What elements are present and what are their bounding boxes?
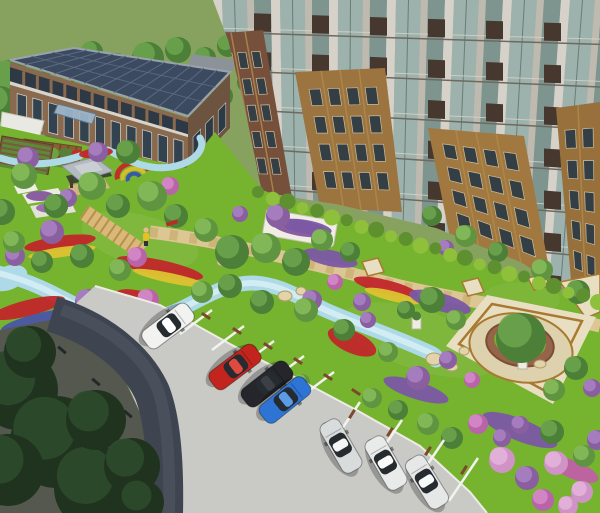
tower-spandrel bbox=[544, 149, 561, 168]
boulder bbox=[278, 291, 292, 301]
hedge-bush bbox=[576, 288, 590, 302]
tree-highlight bbox=[122, 480, 152, 510]
tree-highlight bbox=[389, 400, 403, 414]
tower-brick-window bbox=[587, 255, 595, 277]
tower-brick-window bbox=[569, 190, 579, 209]
tower-brick-window bbox=[584, 160, 594, 179]
bush-highlight bbox=[490, 447, 508, 465]
tower-brick-window bbox=[377, 173, 390, 190]
bush-highlight bbox=[354, 293, 366, 305]
office-window bbox=[142, 130, 151, 160]
hedge-bush bbox=[266, 192, 280, 206]
bush-highlight bbox=[494, 429, 506, 441]
bush-highlight bbox=[89, 142, 103, 156]
tower-brick-window bbox=[565, 129, 576, 148]
tree-highlight bbox=[71, 244, 87, 260]
hedge-bush bbox=[562, 287, 574, 299]
bush-highlight bbox=[559, 496, 573, 510]
tower-brick-window bbox=[337, 144, 350, 161]
bush-highlight bbox=[128, 247, 142, 261]
tower-spandrel bbox=[486, 21, 503, 40]
tower-brick-window bbox=[583, 128, 594, 148]
hedge-bush bbox=[532, 276, 546, 290]
tower-brick-window bbox=[355, 144, 368, 161]
hedge-bush bbox=[368, 222, 384, 238]
bush-highlight bbox=[328, 274, 339, 285]
tree-highlight bbox=[544, 379, 559, 394]
hedge-bush bbox=[280, 193, 296, 209]
tree-highlight bbox=[442, 427, 457, 442]
tree-highlight bbox=[532, 259, 547, 274]
hedge-bush bbox=[341, 214, 353, 226]
tree-highlight bbox=[57, 447, 114, 504]
tree-highlight bbox=[107, 194, 123, 210]
tree-highlight bbox=[574, 445, 589, 460]
tree-highlight bbox=[165, 204, 181, 220]
tower-spandrel bbox=[544, 232, 561, 252]
tree-highlight bbox=[110, 259, 125, 274]
tower-brick-window bbox=[332, 116, 346, 133]
bush-highlight bbox=[267, 204, 283, 220]
tower-brick-window bbox=[369, 116, 382, 133]
tree-highlight bbox=[565, 356, 581, 372]
tower-spandrel bbox=[544, 190, 561, 209]
hedge-bush bbox=[324, 209, 340, 225]
bush-highlight bbox=[440, 351, 452, 363]
tower-spandrel bbox=[544, 23, 561, 42]
tower-spandrel bbox=[312, 54, 329, 73]
tree-highlight bbox=[379, 342, 393, 356]
tree-highlight bbox=[498, 314, 532, 348]
tree-highlight bbox=[252, 233, 272, 253]
tower-brick-window bbox=[359, 172, 372, 189]
hedge-bush bbox=[385, 230, 397, 242]
tree-highlight bbox=[68, 391, 109, 432]
bush-highlight bbox=[533, 489, 548, 504]
tower-brick-window bbox=[328, 88, 342, 105]
tower-spandrel bbox=[254, 13, 271, 32]
tree-highlight bbox=[166, 37, 184, 55]
bush-highlight bbox=[361, 312, 372, 323]
tower-brick-window bbox=[567, 160, 578, 179]
hedge-bush bbox=[429, 242, 441, 254]
tree-highlight bbox=[295, 298, 311, 314]
tree-highlight bbox=[216, 235, 239, 258]
tree-highlight bbox=[489, 242, 503, 256]
pavilion-post bbox=[70, 178, 73, 188]
tree-highlight bbox=[398, 301, 410, 313]
tree-highlight bbox=[447, 310, 461, 324]
tree-highlight bbox=[106, 439, 144, 477]
tower-spandrel bbox=[428, 59, 445, 78]
person-body bbox=[143, 233, 149, 241]
hedge-bush bbox=[488, 260, 502, 274]
tree-highlight bbox=[418, 413, 433, 428]
bush-highlight bbox=[465, 372, 476, 383]
office-window bbox=[158, 134, 167, 163]
tree-highlight bbox=[334, 319, 349, 334]
tree-highlight bbox=[423, 206, 437, 220]
bush-highlight bbox=[233, 206, 244, 217]
tree-highlight bbox=[138, 181, 158, 201]
tree-highlight bbox=[192, 281, 207, 296]
tower-brick-window bbox=[373, 144, 386, 161]
scene-svg bbox=[0, 0, 600, 513]
tree-highlight bbox=[32, 251, 47, 266]
hedge-bush bbox=[354, 220, 368, 234]
tower-brick-window bbox=[309, 89, 323, 106]
hedge-bush bbox=[457, 250, 473, 266]
hedge-bush bbox=[413, 238, 429, 254]
bush-highlight bbox=[407, 366, 423, 382]
tree-highlight bbox=[195, 218, 211, 234]
tower-brick-window bbox=[346, 88, 360, 105]
tree-highlight bbox=[341, 242, 355, 256]
tower-spandrel bbox=[428, 19, 445, 38]
bush-highlight bbox=[469, 414, 483, 428]
hedge-bush bbox=[443, 248, 457, 262]
hedge-bush bbox=[310, 204, 324, 218]
tree-highlight bbox=[312, 229, 327, 244]
tower-spandrel bbox=[544, 65, 561, 84]
person-head bbox=[143, 227, 148, 232]
tower-spandrel bbox=[370, 17, 387, 36]
tree-highlight bbox=[4, 231, 19, 246]
boulder bbox=[459, 347, 469, 355]
bush-highlight bbox=[516, 466, 532, 482]
tower-spandrel bbox=[312, 15, 329, 34]
hedge-bush bbox=[399, 232, 413, 246]
tree-highlight bbox=[12, 163, 30, 181]
tree-highlight bbox=[45, 194, 61, 210]
tree-highlight bbox=[363, 388, 377, 402]
tower-brick-window bbox=[573, 250, 582, 271]
tree-highlight bbox=[456, 225, 471, 240]
tower-spandrel bbox=[486, 62, 503, 81]
bush-highlight bbox=[584, 379, 596, 391]
bush-highlight bbox=[41, 220, 57, 236]
tower-brick-window bbox=[585, 192, 595, 212]
bush-highlight bbox=[18, 147, 33, 162]
tower-spandrel bbox=[486, 103, 503, 122]
tree-highlight bbox=[420, 287, 438, 305]
bush-highlight bbox=[545, 451, 561, 467]
tower-brick-window bbox=[586, 223, 595, 244]
bush-highlight bbox=[572, 481, 587, 496]
hedge-bush bbox=[518, 271, 530, 283]
tree-highlight bbox=[219, 274, 235, 290]
tower-brick-window bbox=[365, 87, 378, 104]
tower-brick-window bbox=[571, 220, 581, 240]
tree-highlight bbox=[283, 248, 302, 267]
hedge-bush bbox=[296, 202, 308, 214]
tree-highlight bbox=[117, 140, 133, 156]
render-viewport bbox=[0, 0, 600, 513]
hedge-bush bbox=[501, 266, 517, 282]
hedge-bush bbox=[252, 186, 264, 198]
tree-highlight bbox=[79, 172, 98, 191]
tower-brick-window bbox=[341, 172, 354, 189]
tower-brick-window bbox=[351, 116, 364, 133]
tower-spandrel bbox=[428, 100, 445, 119]
tree-highlight bbox=[6, 327, 41, 362]
hedge-bush bbox=[546, 278, 562, 294]
tree-highlight bbox=[541, 420, 557, 436]
tree-highlight bbox=[251, 290, 267, 306]
boulder bbox=[534, 360, 546, 368]
bush-highlight bbox=[512, 416, 524, 428]
hedge-bush bbox=[474, 258, 486, 270]
